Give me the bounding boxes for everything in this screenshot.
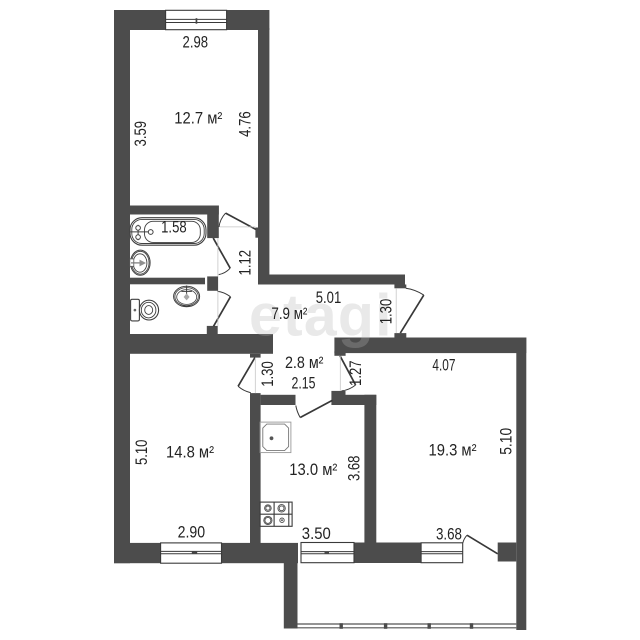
svg-text:19.3 м²: 19.3 м² — [429, 441, 478, 459]
svg-text:3.50: 3.50 — [302, 525, 331, 543]
svg-text:7.9 м²: 7.9 м² — [271, 305, 307, 323]
svg-text:1.30: 1.30 — [259, 361, 277, 387]
svg-text:14.8 м²: 14.8 м² — [166, 443, 215, 461]
svg-text:1.30: 1.30 — [378, 299, 396, 325]
svg-text:5.10: 5.10 — [498, 428, 516, 455]
svg-text:13.0 м²: 13.0 м² — [289, 461, 338, 479]
svg-text:1.12: 1.12 — [236, 250, 254, 276]
svg-text:4.07: 4.07 — [432, 356, 455, 374]
svg-text:4.76: 4.76 — [237, 111, 255, 137]
svg-text:2.98: 2.98 — [183, 34, 209, 52]
svg-text:1.27: 1.27 — [347, 360, 365, 386]
svg-text:2.8 м²: 2.8 м² — [285, 354, 324, 372]
svg-text:2.15: 2.15 — [292, 375, 316, 393]
svg-text:3.68: 3.68 — [436, 525, 462, 543]
svg-text:2.90: 2.90 — [178, 524, 206, 542]
svg-text:5.10: 5.10 — [133, 440, 151, 466]
svg-text:3.68: 3.68 — [346, 456, 364, 482]
svg-text:3.59: 3.59 — [132, 121, 150, 147]
svg-text:12.7 м²: 12.7 м² — [174, 109, 223, 127]
svg-text:5.01: 5.01 — [316, 289, 342, 307]
svg-text:1.58: 1.58 — [161, 218, 187, 236]
